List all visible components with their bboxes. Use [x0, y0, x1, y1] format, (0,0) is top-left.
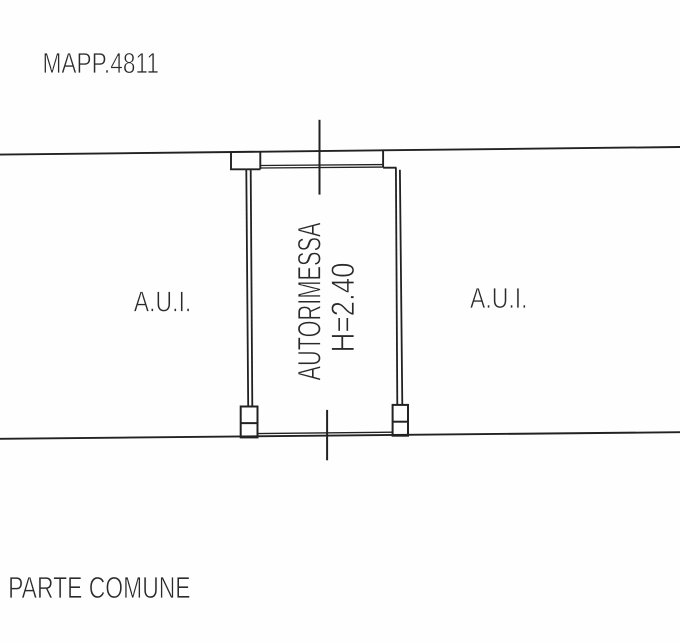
svg-text:A.U.I.: A.U.I. — [470, 283, 528, 315]
svg-text:AUTORIMESSA: AUTORIMESSA — [292, 222, 328, 380]
svg-text:A.U.I.: A.U.I. — [134, 287, 192, 319]
svg-text:PARTE COMUNE: PARTE COMUNE — [8, 570, 191, 605]
svg-text:H=2.40: H=2.40 — [325, 263, 361, 353]
svg-text:MAPP.4811: MAPP.4811 — [43, 48, 160, 80]
